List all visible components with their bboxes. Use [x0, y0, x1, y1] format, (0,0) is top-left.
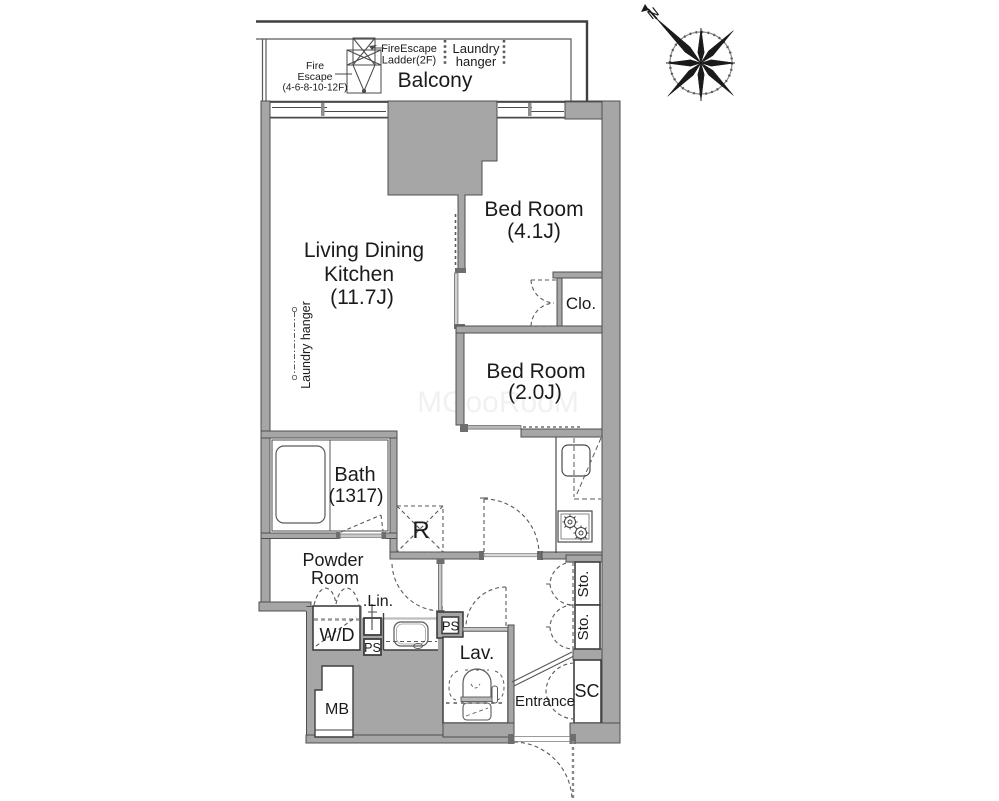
- svg-text:Bed Room: Bed Room: [484, 198, 583, 221]
- svg-text:Sto.: Sto.: [575, 614, 592, 641]
- svg-text:(2.0J): (2.0J): [508, 381, 562, 404]
- svg-text:Sto.: Sto.: [575, 571, 592, 598]
- svg-text:(4-6-8-10-12F): (4-6-8-10-12F): [282, 83, 347, 94]
- svg-text:Room: Room: [311, 568, 359, 588]
- svg-text:Clo.: Clo.: [566, 294, 596, 313]
- svg-text:Balcony: Balcony: [398, 69, 473, 92]
- svg-text:Ladder(2F): Ladder(2F): [382, 55, 436, 67]
- svg-text:(4.1J): (4.1J): [507, 220, 561, 243]
- svg-text:Living Dining: Living Dining: [304, 239, 424, 262]
- svg-text:Bath: Bath: [334, 464, 375, 486]
- svg-text:R: R: [412, 517, 429, 544]
- svg-text:SC: SC: [574, 681, 599, 701]
- svg-text:hanger: hanger: [456, 54, 497, 69]
- svg-text:Kitchen: Kitchen: [324, 263, 394, 286]
- svg-text:Lav.: Lav.: [460, 643, 495, 664]
- svg-text:FireEscape: FireEscape: [381, 43, 437, 55]
- svg-text:Entrance: Entrance: [515, 693, 575, 710]
- svg-text:Powder: Powder: [302, 550, 363, 570]
- svg-text:W/D: W/D: [320, 625, 355, 645]
- svg-text:(11.7J): (11.7J): [330, 286, 394, 309]
- svg-text:MB: MB: [325, 701, 349, 718]
- svg-text:Laundry hanger: Laundry hanger: [299, 301, 313, 389]
- svg-text:PS: PS: [364, 641, 381, 655]
- svg-text:Bed Room: Bed Room: [486, 360, 585, 383]
- svg-text:(1317): (1317): [329, 486, 384, 507]
- svg-text:Escape: Escape: [297, 71, 332, 83]
- svg-text:PS: PS: [442, 619, 460, 634]
